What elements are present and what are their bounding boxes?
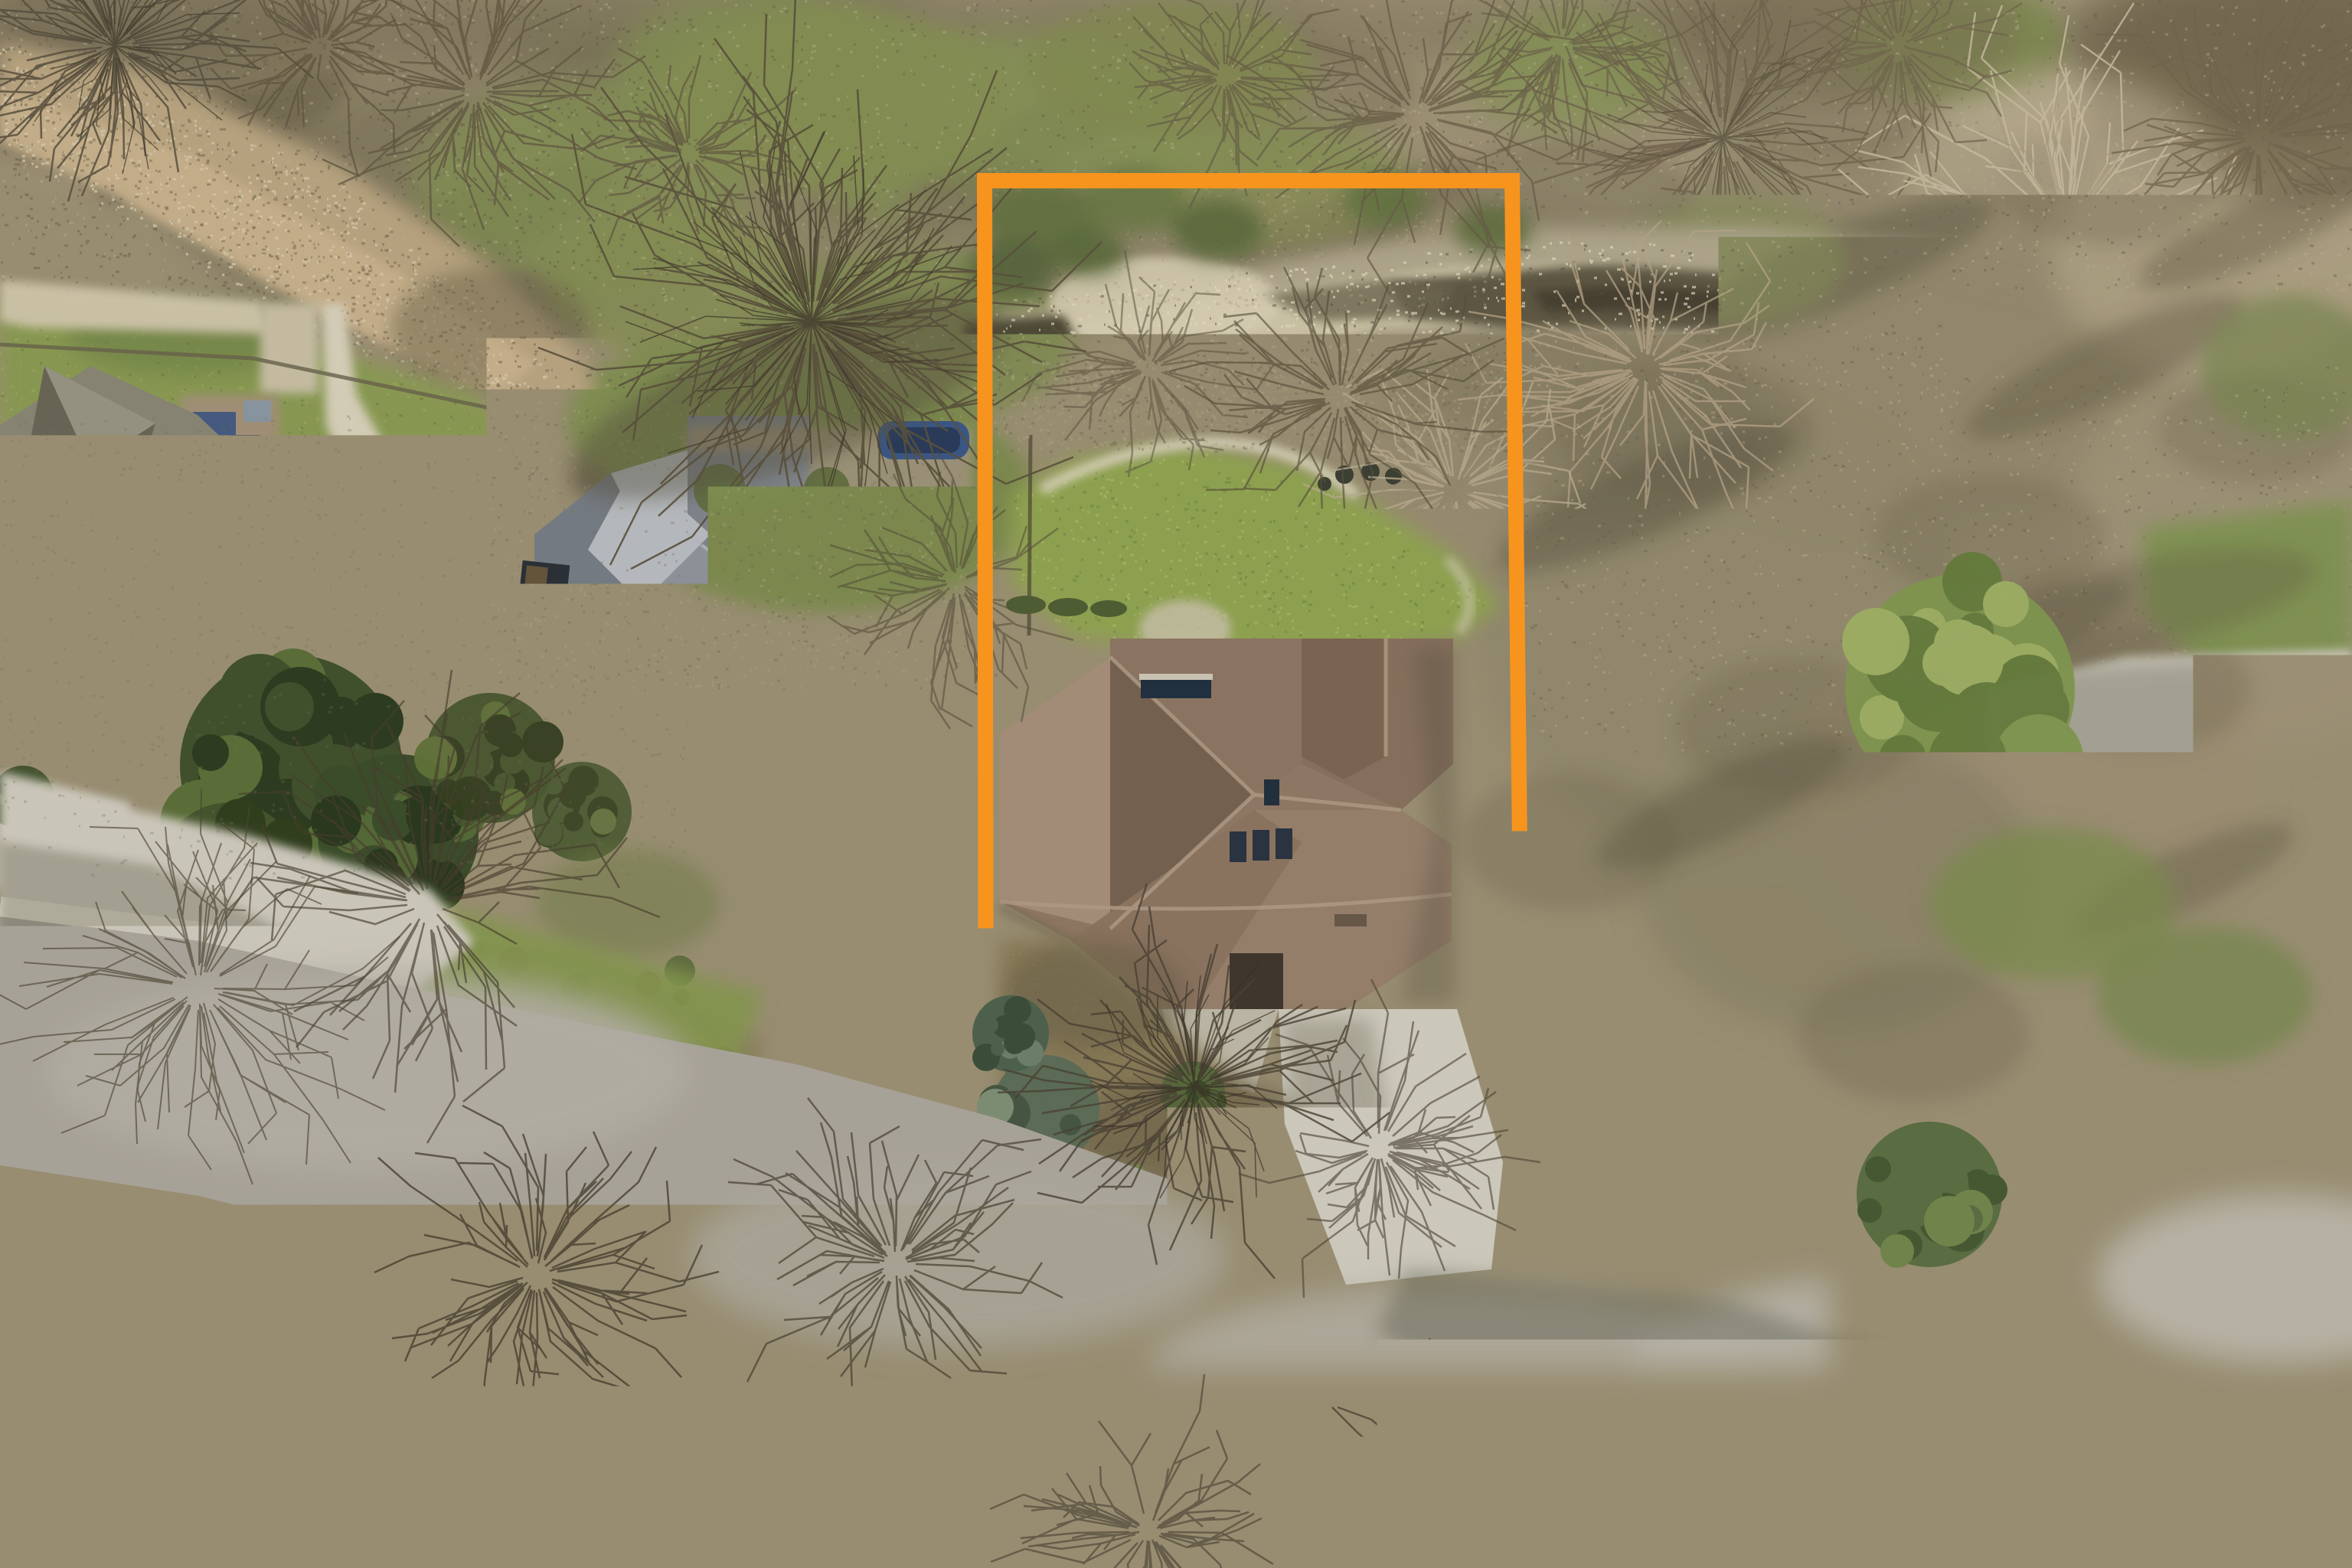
svg-text:Lot lines are approximate: Lot lines are approximate bbox=[1095, 1501, 1373, 1527]
svg-text:6417 W Plantation Ln: 6417 W Plantation Ln bbox=[1041, 1326, 1442, 1370]
svg-text:MLS: MLS bbox=[2225, 1495, 2296, 1533]
